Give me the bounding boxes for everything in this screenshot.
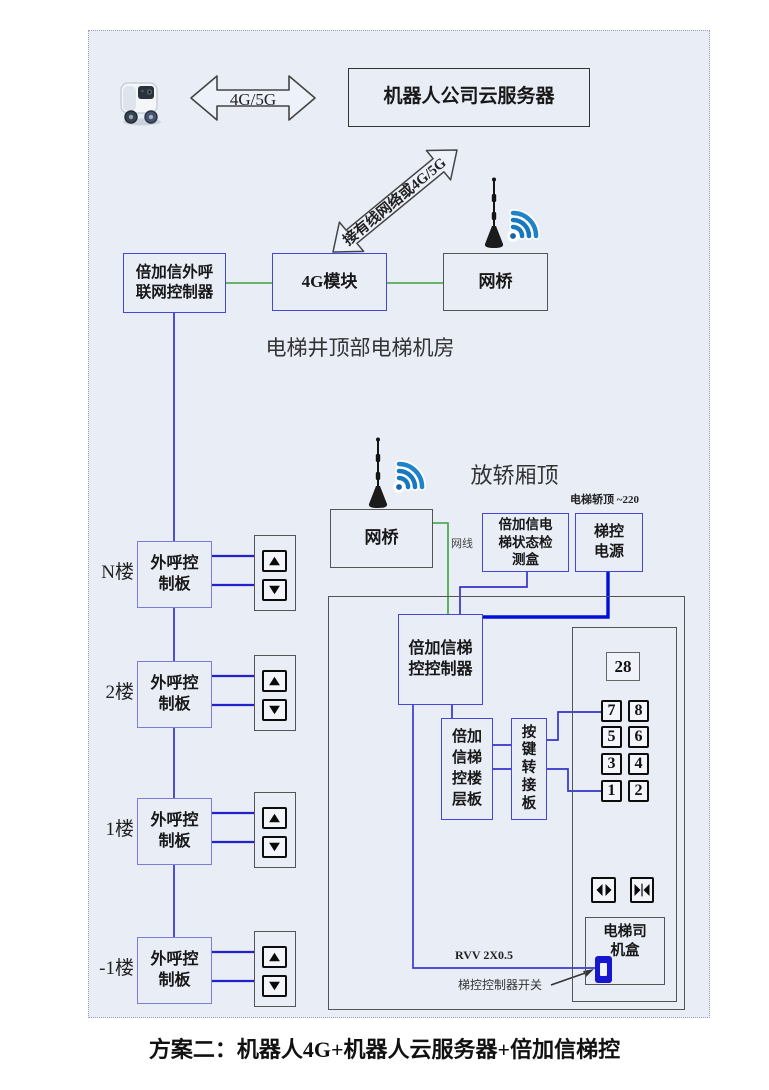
elevator-status-box: 倍加信电 梯状态检 测盒 <box>482 513 569 572</box>
wire-spec-label: RVV 2X0.5 <box>455 948 530 963</box>
door-close-button <box>630 877 654 903</box>
key-adapter-box: 按 键 转 接 板 <box>511 718 547 820</box>
hall-down-button-2 <box>262 699 287 721</box>
key-adapter-label: 按 键 转 接 板 <box>522 725 537 813</box>
up-arrow-icon <box>267 951 282 963</box>
outcall-network-controller-box: 倍加信外呼 联网控制器 <box>123 253 226 313</box>
floor-label-n: N楼 <box>80 561 134 585</box>
delivery-robot-icon <box>121 83 161 125</box>
switch-annotation-label: 梯控控制器开关 <box>458 978 553 993</box>
elevator-controller-box: 倍加信梯 控控制器 <box>398 614 483 705</box>
elevator-power-label: 梯控 电源 <box>594 523 624 562</box>
car-button-1: 1 <box>601 780 622 802</box>
hall-call-board-1: 外呼控 制板 <box>137 798 212 865</box>
car-button-3: 3 <box>601 753 622 775</box>
machine-room-caption: 电梯井顶部电梯机房 <box>235 332 485 362</box>
up-arrow-icon <box>267 555 282 567</box>
car-button-5: 5 <box>601 726 622 748</box>
hall-call-board-minus1: 外呼控 制板 <box>137 937 212 1004</box>
down-arrow-icon <box>267 584 282 596</box>
floor-label-1: 1楼 <box>80 818 134 842</box>
hall-up-button-2 <box>262 670 287 692</box>
cloud-server-label: 机器人公司云服务器 <box>383 85 554 110</box>
elevator-power-box: 梯控 电源 <box>575 513 643 572</box>
hall-call-board-label: 外呼控 制板 <box>150 554 198 596</box>
car-button-7-label: 7 <box>608 702 616 720</box>
bridge-label: 网桥 <box>365 527 399 549</box>
floor-display: 28 <box>606 652 640 681</box>
floor-display-value: 28 <box>615 657 632 677</box>
toggle-switch-actuator <box>600 963 607 976</box>
car-button-2: 2 <box>628 780 649 802</box>
floor-board-label: 倍加 信梯 控楼 层板 <box>452 727 482 811</box>
up-arrow-icon <box>267 675 282 687</box>
car-button-8: 8 <box>628 700 649 722</box>
car-button-1-label: 1 <box>608 782 616 800</box>
hall-call-board-label: 外呼控 制板 <box>150 674 198 716</box>
car-button-4-label: 4 <box>635 755 643 773</box>
module-4g-box: 4G模块 <box>272 253 387 311</box>
elevator-status-label: 倍加信电 梯状态检 测盒 <box>499 516 553 569</box>
car-button-8-label: 8 <box>635 702 643 720</box>
hall-up-button-minus1 <box>262 946 287 968</box>
floor-board-box: 倍加 信梯 控楼 层板 <box>441 718 493 820</box>
hall-down-button-n <box>262 579 287 601</box>
bridge-box-machine-room: 网桥 <box>443 253 548 311</box>
car-button-5-label: 5 <box>608 728 616 746</box>
hall-call-board-n: 外呼控 制板 <box>137 541 212 608</box>
elevator-driver-box-label: 电梯司 机盒 <box>603 923 647 961</box>
wire-floor-buttons <box>212 556 254 981</box>
down-arrow-icon <box>267 980 282 992</box>
hall-down-button-minus1 <box>262 975 287 997</box>
diagram-page: 4G/5G 机器人公司云服务器 接有线网络或4G/5G 倍加信外呼 联网控制器 … <box>0 0 769 1090</box>
car-button-3-label: 3 <box>608 755 616 773</box>
car-top-caption: 放轿厢顶 <box>452 458 577 490</box>
door-close-icon <box>633 882 651 898</box>
link-4g5g-label: 4G/5G <box>215 89 291 110</box>
scheme-caption: 方案二：机器人4G+机器人云服务器+倍加信梯控 <box>0 1032 769 1064</box>
wifi-signal-icon <box>384 459 426 501</box>
hall-call-board-label: 外呼控 制板 <box>150 811 198 853</box>
car-button-2-label: 2 <box>635 782 643 800</box>
door-open-icon <box>595 882 613 898</box>
down-arrow-icon <box>267 704 282 716</box>
hall-up-button-1 <box>262 807 287 829</box>
antenna-icon <box>369 438 387 509</box>
power-note-label: 电梯轿顶 ~220 <box>570 494 662 508</box>
car-button-6-label: 6 <box>635 728 643 746</box>
floor-label-minus1: -1楼 <box>80 957 134 981</box>
car-button-7: 7 <box>601 700 622 722</box>
car-button-6: 6 <box>628 726 649 748</box>
floor-label-2: 2楼 <box>80 681 134 705</box>
antenna-icon <box>485 178 503 249</box>
up-arrow-icon <box>267 812 282 824</box>
hall-up-button-n <box>262 550 287 572</box>
door-open-button <box>591 877 616 903</box>
module-4g-label: 4G模块 <box>302 271 358 293</box>
cloud-server-box: 机器人公司云服务器 <box>348 68 590 127</box>
down-arrow-icon <box>267 841 282 853</box>
car-button-4: 4 <box>628 753 649 775</box>
wifi-signal-icon <box>498 208 540 250</box>
elevator-controller-label: 倍加信梯 控控制器 <box>408 639 472 681</box>
bridge-label: 网桥 <box>479 271 513 293</box>
hall-call-board-label: 外呼控 制板 <box>150 950 198 992</box>
hall-down-button-1 <box>262 836 287 858</box>
outcall-network-controller-label: 倍加信外呼 联网控制器 <box>136 263 214 303</box>
hall-call-board-2: 外呼控 制板 <box>137 661 212 728</box>
toggle-switch-icon <box>595 956 612 983</box>
bridge-box-car-top: 网桥 <box>330 509 433 568</box>
cable-label: 网线 <box>451 538 473 552</box>
